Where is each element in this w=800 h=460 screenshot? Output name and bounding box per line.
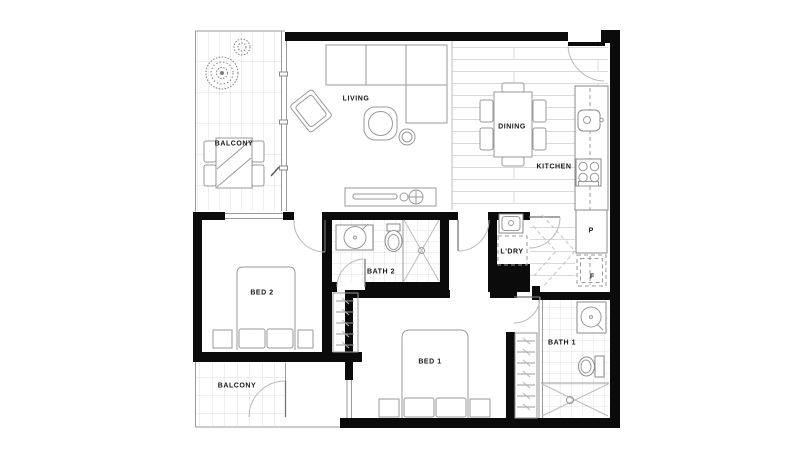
dining-chair	[502, 157, 524, 166]
wall-step-kitchen	[532, 286, 540, 300]
wall-bath2-right	[440, 212, 449, 292]
room-label-laundry: L'DRY	[500, 249, 523, 256]
wall-laundry-left	[488, 212, 497, 265]
side-table	[399, 129, 415, 145]
bed1-side-table	[379, 399, 399, 417]
bed2-furniture	[213, 267, 313, 350]
wall-bed1-top-right	[490, 290, 514, 298]
wall-mid-seg1	[193, 212, 225, 220]
wall-right	[610, 30, 620, 428]
wall-bottom	[340, 418, 620, 428]
cabinet-label-fridge: F	[590, 274, 594, 281]
wall-bed1-top-left	[345, 290, 450, 298]
floor-plan-drawing	[0, 0, 800, 460]
cooktop	[576, 159, 601, 186]
fridge-space	[577, 255, 606, 286]
hall-door	[458, 220, 489, 251]
bed1-balcony-window	[347, 380, 352, 418]
bath2-vanity	[336, 224, 373, 250]
bed1-pillow	[404, 398, 434, 417]
kitchen-counter	[575, 86, 608, 210]
floor-plan-page: BALCONY LIVING DINING KITCHEN L'DRY BATH…	[0, 0, 800, 460]
bed2-side-table	[213, 330, 232, 348]
wall-bed2-left	[193, 212, 202, 362]
bed2-door	[294, 220, 325, 252]
wall-laundry-mass	[488, 264, 530, 292]
laundry-fixtures	[498, 214, 527, 265]
room-label-kitchen: KITCHEN	[537, 164, 572, 171]
room-label-dining: DINING	[498, 124, 526, 131]
armchair	[290, 89, 333, 133]
room-label-balcony-bottom: BALCONY	[218, 383, 256, 390]
bath1-door	[514, 297, 540, 323]
room-label-bath2: BATH 2	[367, 269, 395, 276]
entry-floorboards	[452, 41, 608, 86]
outdoor-chair	[252, 141, 264, 162]
bed2-side-table	[298, 330, 313, 348]
wall-top	[285, 32, 568, 41]
bath1-toilet	[579, 356, 605, 377]
room-label-living: LIVING	[343, 96, 370, 103]
tv-unit	[345, 188, 436, 206]
kitchen-sink	[578, 110, 603, 131]
outdoor-chair	[204, 165, 216, 186]
wall-mid-seg3	[322, 212, 458, 220]
room-label-bed1: BED 1	[418, 359, 441, 366]
balcony-bottom-tiles	[196, 363, 285, 426]
cabinet-label-pantry: P	[589, 228, 594, 235]
wall-mid-seg2	[283, 212, 294, 220]
outdoor-chair	[252, 165, 264, 186]
dining-chair	[533, 128, 546, 150]
bed1-wardrobe-right	[515, 333, 537, 418]
wall-wardrobe-bed1	[506, 332, 515, 418]
dining-chair	[502, 83, 524, 92]
wall-bed2-bottom	[193, 352, 362, 362]
bed1-side-table	[470, 399, 490, 417]
bath2-toilet	[385, 224, 402, 252]
entry-door-leaf	[568, 42, 605, 46]
room-label-bath1: BATH 1	[548, 340, 576, 347]
dining-chair	[533, 100, 546, 122]
bed1-pillow	[436, 398, 466, 417]
bath1-vanity	[577, 302, 606, 333]
wall-bath2-bottom-left	[322, 282, 337, 292]
bed2-pillow	[267, 329, 293, 348]
dining-chair	[480, 100, 493, 122]
wall-bath1-top	[540, 292, 610, 300]
bed2-pillow	[239, 329, 265, 348]
room-label-balcony-top: BALCONY	[215, 141, 253, 148]
coffee-table	[364, 107, 397, 140]
kitchen-walkway-floorboards	[530, 220, 575, 284]
room-label-bed2: BED 2	[250, 290, 273, 297]
living-furniture	[290, 45, 447, 206]
bed2-balcony-window	[225, 214, 283, 219]
dining-chair	[480, 128, 493, 150]
